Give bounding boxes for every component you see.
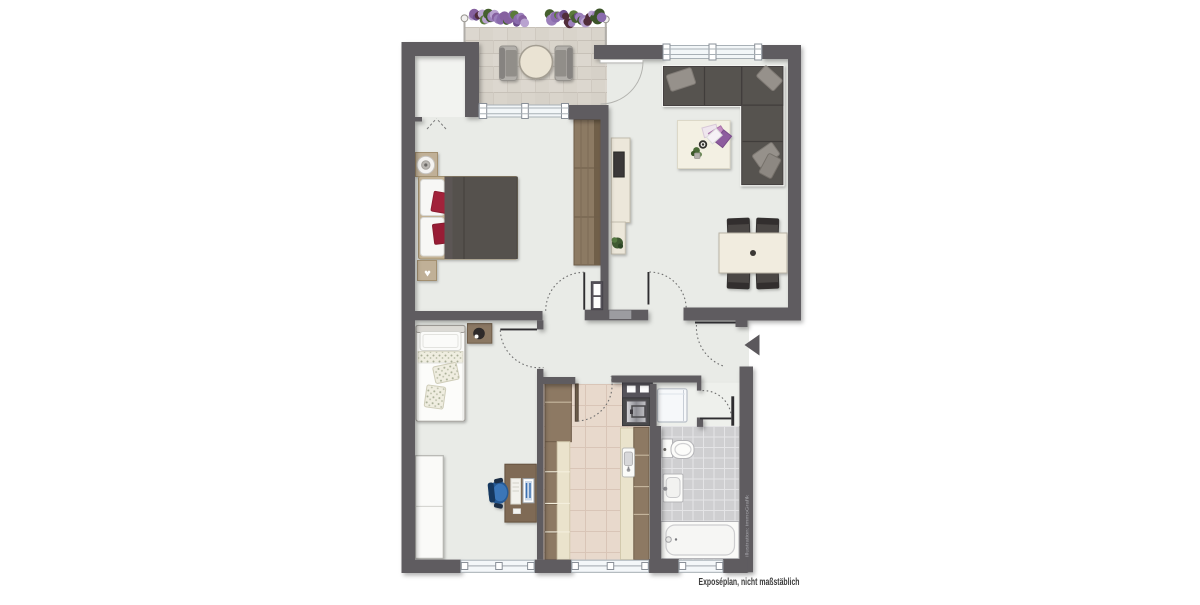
svg-text:Exposéplan, nicht maßstäblich: Exposéplan, nicht maßstäblich <box>699 577 800 588</box>
svg-text:Illustration: immoGrafik: Illustration: immoGrafik <box>745 494 750 557</box>
